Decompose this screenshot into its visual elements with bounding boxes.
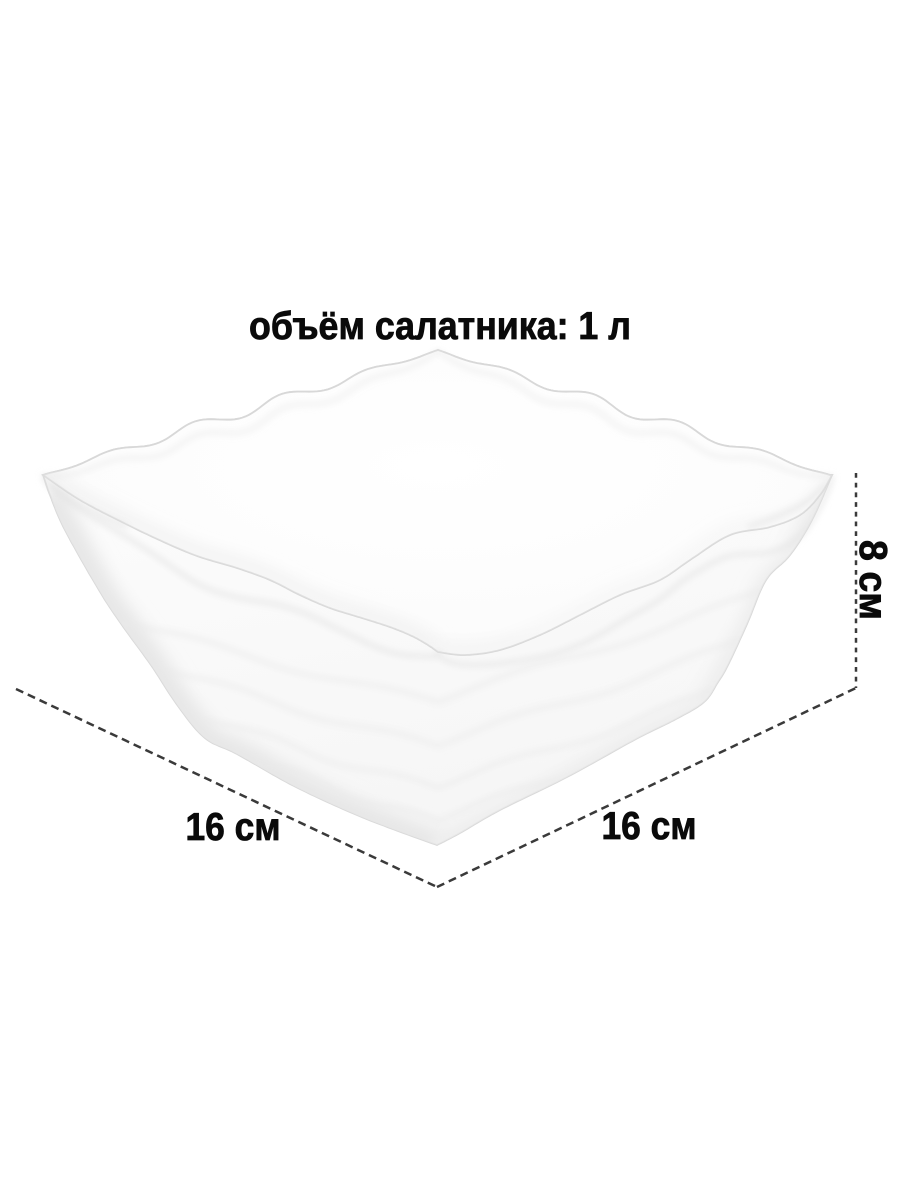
svg-text:объём салатника: 1 л: объём салатника: 1 л — [249, 305, 631, 348]
svg-text:16 см: 16 см — [186, 806, 281, 849]
svg-text:16 см: 16 см — [602, 805, 697, 848]
svg-text:8 см: 8 см — [851, 540, 894, 620]
